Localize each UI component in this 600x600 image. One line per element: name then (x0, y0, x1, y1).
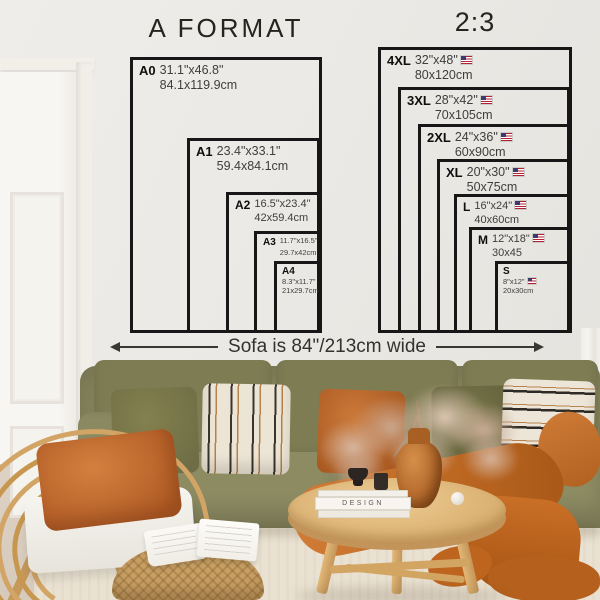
arrow-right-icon (534, 342, 544, 352)
arrow-left-icon (110, 342, 120, 352)
size-label: 2XL 24"x36" 60x90cm (421, 127, 567, 160)
chair-pillow-rust (35, 428, 183, 532)
size-name: A3 (263, 237, 276, 249)
size-cm: 29.7x42cm (280, 249, 318, 258)
open-book (196, 518, 259, 561)
ratio-title: 2:3 (378, 7, 572, 38)
size-label: XL 20"x30" 50x75cm (440, 162, 567, 195)
book-stack (318, 490, 408, 497)
door (0, 72, 76, 464)
size-label: A1 23.4"x33.1" 59.4x84.1cm (190, 141, 317, 174)
black-cup (374, 473, 388, 490)
size-box-a4: A4 8.3"x11.7" 21x29.7cm (274, 261, 320, 333)
size-inches: 12"x18" (492, 233, 565, 247)
design-book: DESIGN (315, 497, 411, 510)
size-label: 3XL 28"x42" 70x105cm (401, 90, 567, 123)
size-inches: 32"x48" (415, 53, 567, 68)
measure-line (436, 346, 534, 348)
size-name: A2 (235, 198, 250, 212)
size-cm: 84.1x119.9cm (160, 78, 317, 93)
vase-neck (408, 428, 430, 444)
size-name: A1 (196, 144, 213, 159)
size-inches: 16"x24" (474, 200, 565, 214)
pillow-striped-vertical (201, 383, 291, 475)
measure-label: Sofa is 84"/213cm wide (228, 336, 426, 358)
table-shadow (296, 586, 506, 600)
us-flag-icon (533, 234, 544, 242)
size-cm: 60x90cm (455, 145, 565, 160)
size-cm: 80x120cm (415, 68, 567, 83)
size-name: 4XL (387, 53, 411, 68)
measure-line (120, 346, 218, 348)
size-cm: 21x29.7cm (282, 287, 317, 296)
size-name: L (463, 200, 470, 214)
size-name: XL (446, 165, 463, 180)
us-flag-icon (513, 168, 524, 176)
size-label: 4XL 32"x48" 80x120cm (381, 50, 569, 83)
size-inches: 16.5"x23.4" (254, 198, 315, 212)
size-cm: 59.4x84.1cm (217, 159, 315, 174)
a-format-title: A FORMAT (130, 13, 322, 44)
poster-size-guide-image: A FORMAT A0 31.1"x46.8" 84.1x119.9cm A1 … (0, 0, 600, 600)
size-cm: 70x105cm (435, 108, 565, 123)
size-name: 2XL (427, 130, 451, 145)
dried-flowers (462, 436, 520, 482)
size-cm: 42x59.4cm (254, 212, 315, 225)
size-name: M (478, 233, 488, 247)
size-box-s: S 8"x12" 20x30cm (495, 261, 570, 333)
size-name: A0 (139, 63, 156, 78)
size-inches: 24"x36" (455, 130, 565, 145)
size-inches: 20"x30" (467, 165, 565, 180)
size-name: 3XL (407, 93, 431, 108)
us-flag-icon (501, 133, 512, 141)
size-label: A2 16.5"x23.4" 42x59.4cm (229, 195, 317, 225)
size-label: M 12"x18" 30x45 (472, 230, 567, 260)
book-stack (318, 510, 410, 518)
door-panel (10, 192, 64, 404)
size-inches: 23.4"x33.1" (217, 144, 315, 159)
us-flag-icon (528, 278, 536, 284)
size-label: A0 31.1"x46.8" 84.1x119.9cm (133, 60, 319, 93)
us-flag-icon (481, 96, 492, 104)
size-cm: 30x45 (492, 247, 565, 260)
size-inches: 31.1"x46.8" (160, 63, 317, 78)
size-label: L 16"x24" 40x60cm (457, 197, 567, 227)
throw-blanket (488, 556, 600, 600)
size-label: S 8"x12" 20x30cm (498, 264, 567, 295)
black-bowl-foot (353, 480, 363, 486)
size-label: A4 8.3"x11.7" 21x29.7cm (277, 264, 317, 295)
size-cm: 20x30cm (503, 287, 567, 296)
decor-sphere (451, 492, 464, 505)
book-spine-text: DESIGN (342, 500, 384, 507)
sofa-width-measurement: Sofa is 84"/213cm wide (110, 336, 544, 358)
size-cm: 40x60cm (474, 214, 565, 227)
size-inches: 28"x42" (435, 93, 565, 108)
us-flag-icon (461, 56, 472, 64)
size-label: A3 11.7"x16.5" 29.7x42cm (257, 234, 317, 258)
us-flag-icon (515, 201, 526, 209)
size-cm: 50x75cm (467, 180, 565, 195)
